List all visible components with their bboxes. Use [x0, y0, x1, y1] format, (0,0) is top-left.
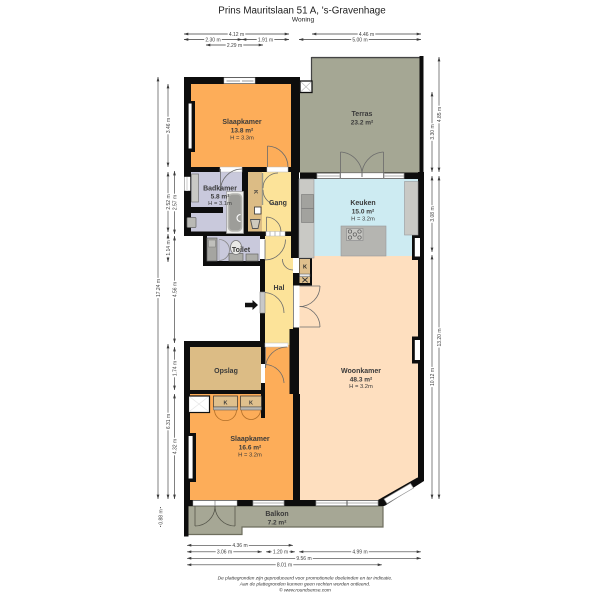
- svg-text:Opslag: Opslag: [214, 368, 238, 375]
- svg-text:1.74 m: 1.74 m: [172, 361, 178, 376]
- svg-text:3.46 m: 3.46 m: [166, 118, 172, 133]
- svg-text:H = 3.2m: H = 3.2m: [351, 217, 375, 223]
- svg-text:4.56 m: 4.56 m: [172, 282, 178, 297]
- svg-text:10.12 m: 10.12 m: [430, 368, 436, 386]
- svg-text:3.06 m: 3.06 m: [217, 550, 232, 556]
- svg-text:13.8 m²: 13.8 m²: [231, 128, 254, 135]
- svg-text:23.2 m²: 23.2 m²: [351, 120, 374, 127]
- svg-text:5.8 m²: 5.8 m²: [211, 194, 231, 201]
- svg-text:K: K: [224, 401, 228, 407]
- svg-text:K: K: [249, 401, 253, 407]
- svg-text:4.85 m: 4.85 m: [437, 107, 443, 122]
- svg-text:Gang: Gang: [269, 200, 287, 207]
- svg-text:1.91 m: 1.91 m: [258, 37, 273, 43]
- svg-text:8.01 m: 8.01 m: [277, 563, 292, 569]
- svg-text:Terras: Terras: [352, 111, 373, 118]
- svg-text:© www.roundsense.com: © www.roundsense.com: [279, 587, 331, 594]
- svg-text:48.3 m²: 48.3 m²: [350, 377, 373, 384]
- svg-text:Slaapkamer: Slaapkamer: [222, 119, 262, 126]
- svg-text:Balkon: Balkon: [265, 511, 288, 518]
- svg-text:1.14 m: 1.14 m: [166, 240, 172, 255]
- svg-text:4.12 m: 4.12 m: [229, 32, 244, 38]
- svg-text:Badkamer: Badkamer: [203, 186, 237, 193]
- svg-text:Keuken: Keuken: [350, 200, 375, 207]
- svg-text:0.88 m: 0.88 m: [158, 509, 164, 524]
- svg-text:Woonkamer: Woonkamer: [341, 368, 381, 375]
- svg-text:7.2 m²: 7.2 m²: [268, 520, 288, 527]
- svg-text:Prins Mauritslaan 51 A, 's-Gra: Prins Mauritslaan 51 A, 's-Gravenhage: [218, 6, 386, 17]
- svg-text:H = 3.2m: H = 3.2m: [238, 453, 262, 459]
- svg-text:H = 3.1m: H = 3.1m: [208, 201, 232, 207]
- svg-text:3.08 m: 3.08 m: [430, 206, 436, 221]
- svg-text:Slaapkamer: Slaapkamer: [230, 436, 270, 443]
- svg-text:K: K: [303, 265, 307, 271]
- svg-text:Aan de plattegronden kunnen ge: Aan de plattegronden kunnen geen rechten…: [239, 581, 370, 587]
- svg-text:9.56 m: 9.56 m: [296, 556, 311, 562]
- svg-text:Woning: Woning: [292, 17, 315, 24]
- svg-text:2.30 m: 2.30 m: [205, 37, 220, 43]
- svg-text:4.36 m: 4.36 m: [232, 543, 247, 549]
- svg-text:Hal: Hal: [274, 285, 285, 292]
- svg-text:2.52 m: 2.52 m: [166, 194, 172, 209]
- svg-text:K: K: [252, 190, 258, 194]
- svg-text:6.31 m: 6.31 m: [166, 414, 172, 429]
- svg-text:16.6 m²: 16.6 m²: [239, 445, 262, 452]
- svg-text:Toilet: Toilet: [232, 247, 251, 254]
- svg-text:4.32 m: 4.32 m: [172, 439, 178, 454]
- svg-text:2.29 m: 2.29 m: [227, 43, 242, 49]
- svg-text:17.24 m: 17.24 m: [156, 279, 162, 297]
- svg-text:1.20 m: 1.20 m: [273, 550, 288, 556]
- svg-text:De plattegronden zijn geproduc: De plattegronden zijn geproduceerd voor …: [218, 575, 393, 581]
- svg-text:15.0 m²: 15.0 m²: [352, 209, 375, 216]
- svg-text:H = 3.2m: H = 3.2m: [349, 384, 373, 390]
- svg-text:H = 3.3m: H = 3.3m: [230, 136, 254, 142]
- svg-text:5.00 m: 5.00 m: [352, 37, 367, 43]
- svg-text:2.57 m: 2.57 m: [172, 195, 178, 210]
- svg-text:13.20 m: 13.20 m: [437, 328, 443, 346]
- svg-text:4.99 m: 4.99 m: [352, 550, 367, 556]
- svg-text:3.30 m: 3.30 m: [430, 124, 436, 139]
